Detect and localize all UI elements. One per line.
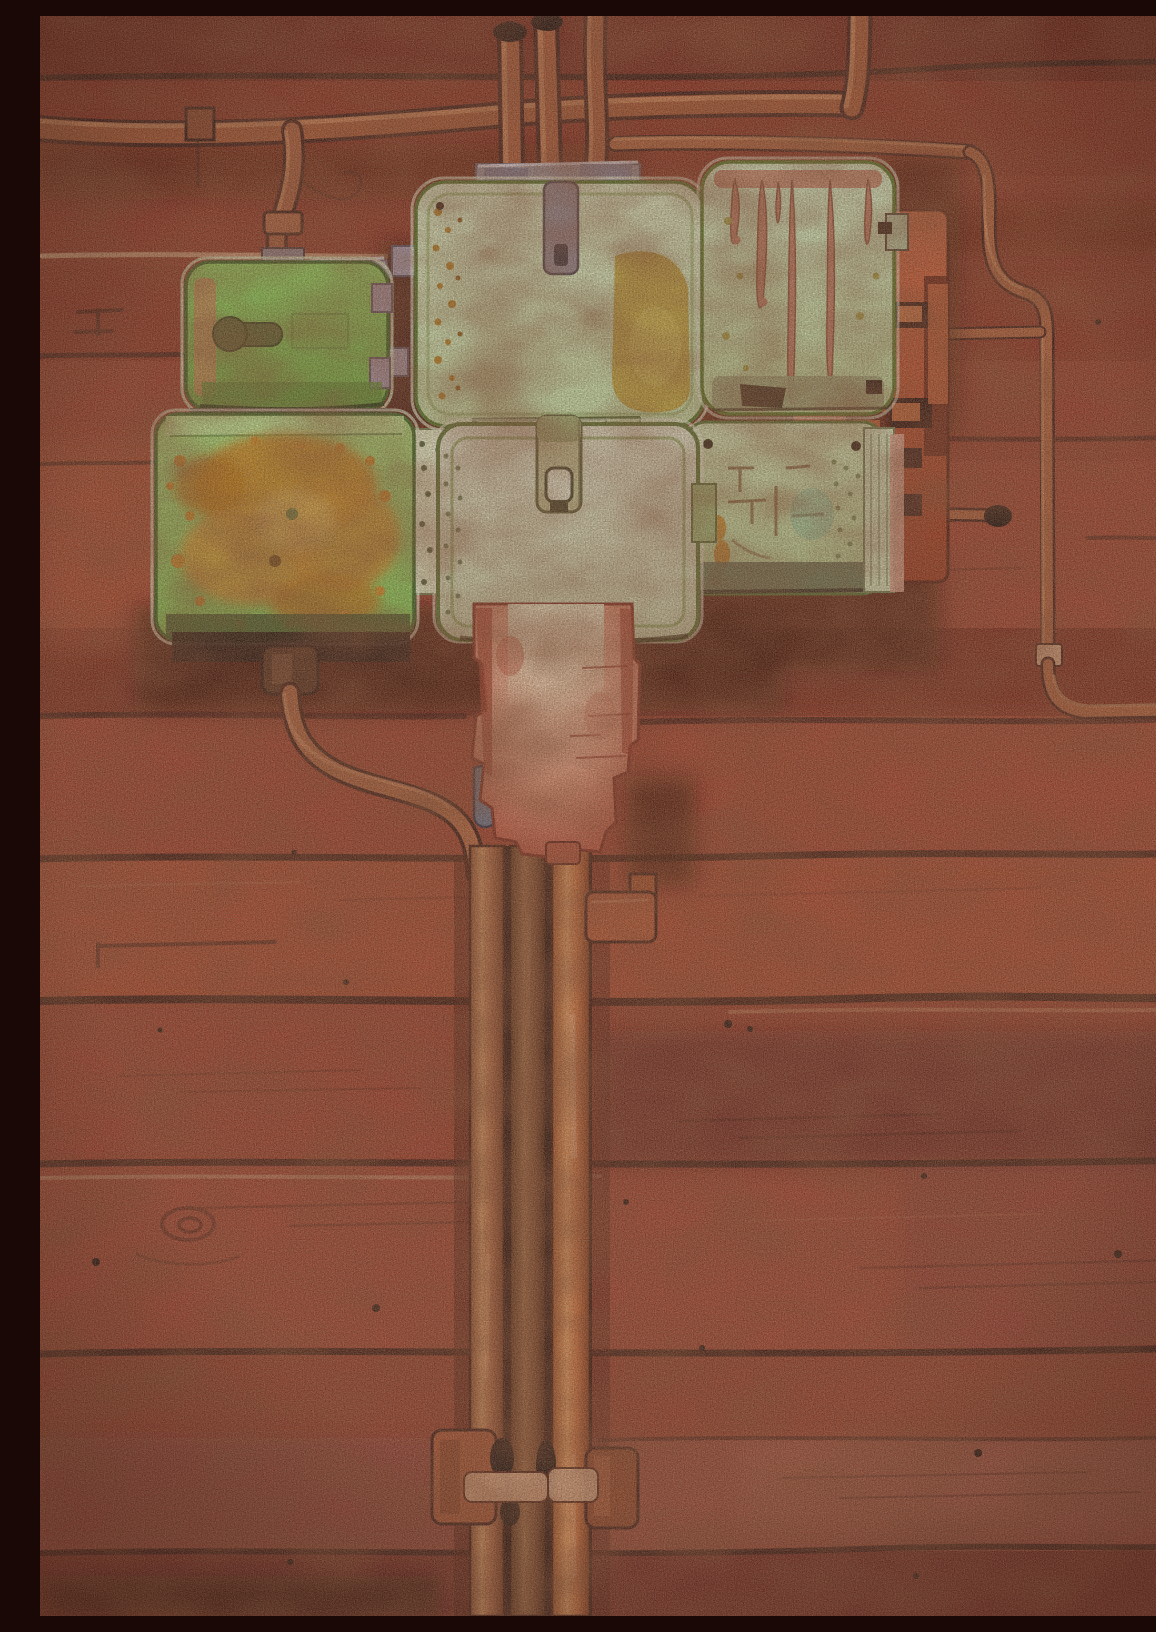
edge-vignette — [40, 16, 1156, 1616]
watercolor-painting — [40, 16, 1156, 1616]
